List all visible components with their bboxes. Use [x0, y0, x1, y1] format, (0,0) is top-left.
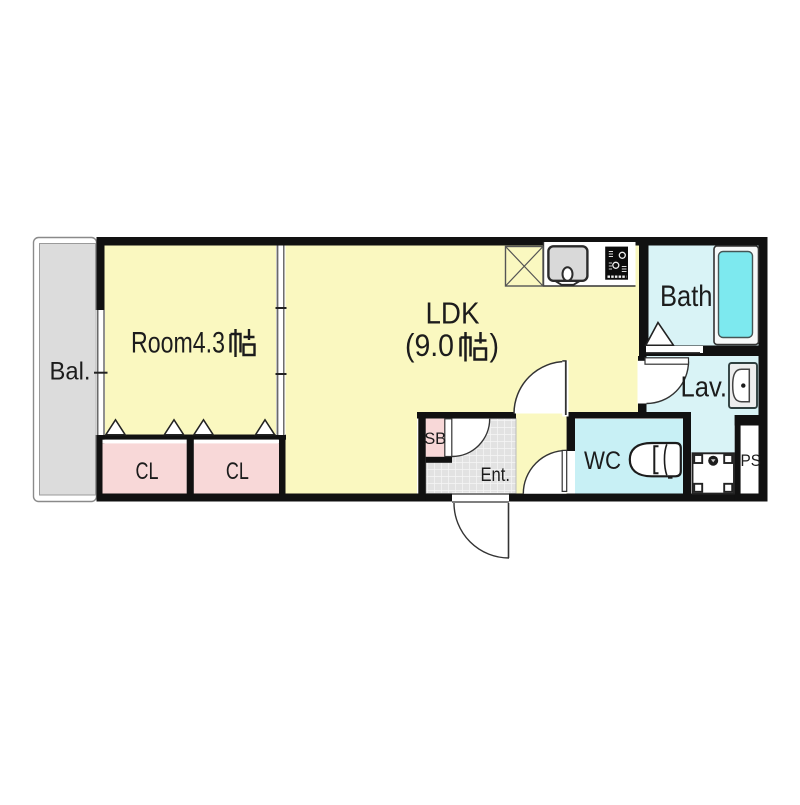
- svg-text:LDK: LDK: [426, 296, 480, 331]
- svg-text:WC: WC: [584, 447, 621, 475]
- svg-text:CL: CL: [136, 458, 159, 485]
- svg-text:Bath: Bath: [660, 280, 713, 313]
- svg-text:Lav.: Lav.: [681, 371, 728, 403]
- svg-text:CL: CL: [226, 458, 249, 485]
- svg-text:Bal.: Bal.: [50, 358, 91, 386]
- svg-text:(9.0: (9.0: [405, 327, 454, 363]
- svg-text:PS: PS: [741, 451, 762, 470]
- svg-text:Room4.3: Room4.3: [131, 327, 225, 360]
- svg-text:SB: SB: [424, 430, 446, 448]
- svg-text:): ): [490, 327, 500, 363]
- svg-text:Ent.: Ent.: [481, 465, 511, 486]
